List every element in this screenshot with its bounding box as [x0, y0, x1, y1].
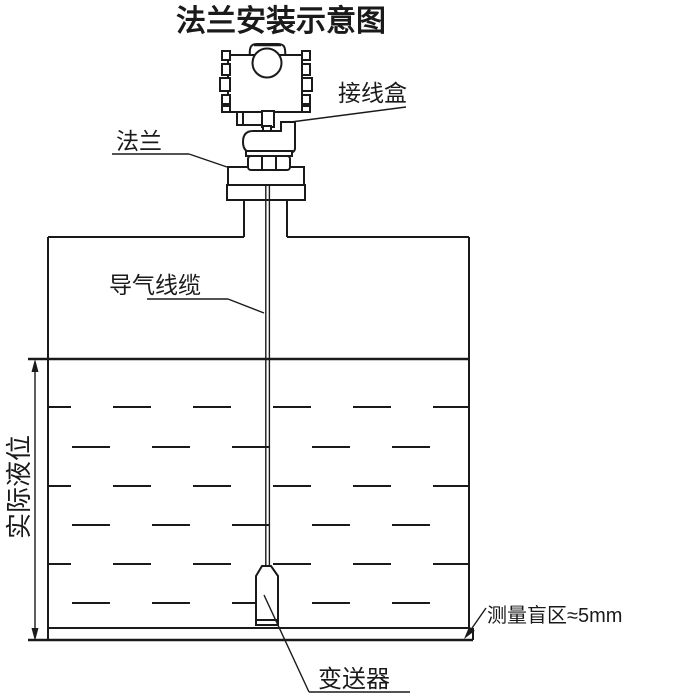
tank	[28, 237, 473, 640]
dimension-actual-level: 实际液位	[4, 359, 39, 641]
probe-weight	[256, 566, 278, 625]
leader-line	[189, 154, 227, 167]
head-connector-bar	[237, 112, 262, 125]
junction-box-label: 接线盒	[338, 80, 407, 106]
label-flange: 法兰	[112, 128, 227, 167]
transmitter-head	[220, 44, 312, 170]
blind-zone-label: 测量盲区≈5mm	[487, 604, 622, 627]
actual-level-label: 实际液位	[4, 435, 34, 539]
head-hex-plug	[253, 49, 282, 78]
probe-body	[256, 566, 278, 625]
liquid	[28, 359, 469, 603]
diagram-title: 法兰安装示意图	[176, 4, 386, 38]
head-ribs-right	[302, 51, 312, 112]
label-transmitter: 变送器	[264, 595, 410, 693]
flange-label: 法兰	[116, 128, 162, 154]
arrow-up-icon	[32, 359, 39, 372]
leader-line	[228, 299, 264, 313]
label-air-cable: 导气线缆	[109, 272, 264, 313]
transmitter-label: 变送器	[318, 666, 390, 693]
label-blind-zone: 测量盲区≈5mm	[464, 604, 622, 639]
hex-nut	[248, 156, 290, 170]
leader-line	[264, 595, 309, 692]
air-cable-label: 导气线缆	[109, 272, 201, 298]
head-connector-block	[262, 111, 274, 127]
head-ribs-left	[220, 51, 230, 112]
diagram-page: 法兰安装示意图	[0, 0, 700, 700]
cable	[266, 186, 270, 567]
leader-line	[470, 608, 486, 631]
flange-installation-diagram: 法兰安装示意图	[0, 0, 700, 700]
